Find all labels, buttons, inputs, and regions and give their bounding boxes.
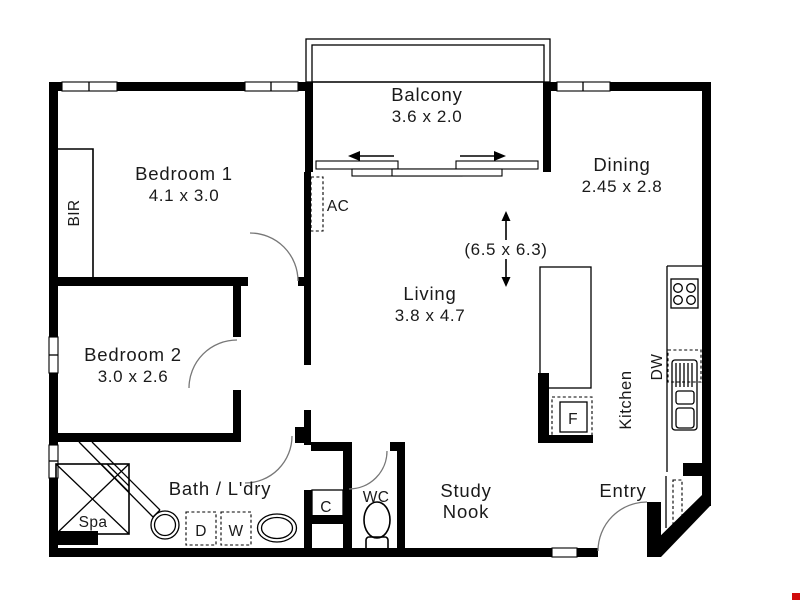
dining-label: Dining (593, 154, 650, 175)
dryer-label: D (195, 523, 207, 540)
balcony-railing (306, 39, 550, 82)
wc-door-arc (349, 451, 387, 489)
door-arcs (189, 233, 647, 551)
kitchen-island-bench (540, 267, 591, 388)
cupboard-label: C (320, 499, 332, 516)
toilet-icon (364, 502, 390, 551)
bedroom1-dims: 4.1 x 3.0 (149, 186, 220, 205)
living-dims: 3.8 x 4.7 (395, 306, 466, 325)
bedroom1-door-arc (250, 233, 298, 281)
balcony-dims: 3.6 x 2.0 (392, 107, 463, 126)
overall-dims: (6.5 x 6.3) (464, 240, 547, 259)
bedroom2-dims: 3.0 x 2.6 (98, 367, 169, 386)
wc-label: WC (363, 489, 390, 506)
floor-plan-drawing: Balcony 3.6 x 2.0 Bedroom 1 4.1 x 3.0 Di… (0, 0, 800, 600)
study-nook-label-line1: Study (440, 480, 491, 501)
dishwasher-label: DW (649, 354, 666, 381)
bath-laundry-label: Bath / L'dry (169, 478, 272, 499)
ac-label: AC (327, 198, 349, 215)
spa-label: Spa (79, 514, 108, 531)
spa-bath-icon (56, 442, 160, 534)
bathtub-icon (258, 514, 297, 542)
entry-door-arc (598, 502, 647, 551)
fridge-label: F (568, 411, 578, 428)
bedroom2-door-arc (189, 340, 237, 388)
bir-label: BIR (66, 199, 83, 226)
kitchen-label: Kitchen (617, 370, 635, 429)
red-artifact (792, 593, 800, 600)
bedroom2-label: Bedroom 2 (84, 344, 182, 365)
sink-icon (672, 360, 697, 430)
cooktop-icon (671, 279, 698, 308)
floor-plan-page: Balcony 3.6 x 2.0 Bedroom 1 4.1 x 3.0 Di… (0, 0, 800, 600)
washer-label: W (228, 523, 243, 540)
study-nook-label-line2: Nook (443, 501, 489, 522)
entry-label: Entry (599, 480, 646, 501)
basin-icon (151, 511, 179, 539)
bath-door-arc (245, 436, 292, 483)
windows (49, 82, 610, 557)
sliding-door-right (392, 151, 538, 176)
living-label: Living (403, 283, 456, 304)
dining-dims: 2.45 x 2.8 (582, 177, 663, 196)
bedroom1-label: Bedroom 1 (135, 163, 233, 184)
balcony-label: Balcony (391, 84, 462, 105)
air-conditioner-icon (311, 177, 323, 231)
